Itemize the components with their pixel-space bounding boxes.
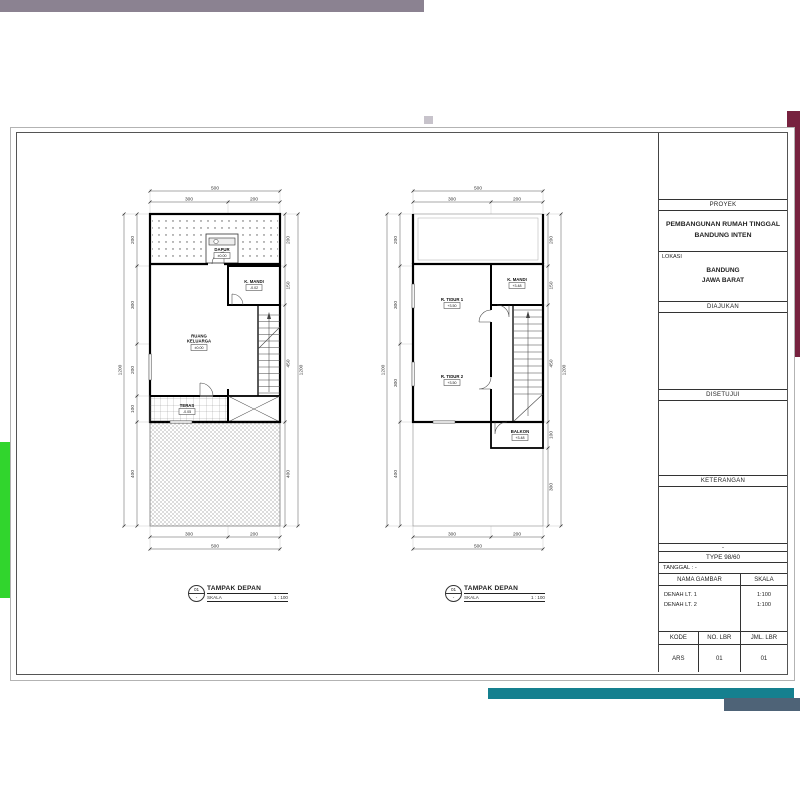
plan2-body	[412, 214, 543, 526]
dim-label: 150	[286, 281, 292, 289]
keterangan-area	[659, 487, 787, 543]
plan1-body	[149, 214, 280, 526]
window-symbol	[433, 421, 455, 423]
page: 500 300 200 1200 200 300 200 100 400 200…	[0, 0, 800, 800]
room-label: R. TIDUR 1	[441, 297, 464, 302]
dim-label: 1200	[562, 364, 568, 375]
dim-label: 300	[185, 197, 193, 203]
drawing-title: TAMPAK DEPAN	[464, 585, 545, 594]
dim-label: 200	[250, 532, 258, 538]
no-lbr-header: NO. LBR	[699, 632, 741, 644]
jml-lbr-header: JML. LBR	[741, 632, 787, 644]
window-symbol	[412, 362, 414, 386]
dim-label: 1200	[381, 364, 387, 375]
dim-label: 1200	[118, 364, 124, 375]
dim-label: 500	[211, 186, 219, 192]
scale-label: SKALA	[464, 595, 479, 600]
drawing-list-header: NAMA GAMBAR SKALA	[659, 574, 787, 586]
tanggal-row: TANGGAL : -	[659, 563, 787, 574]
room-label: R. TIDUR 2	[441, 374, 464, 379]
dim-label: 150	[549, 281, 555, 289]
floor-plan-1-drawing: 500 300 200 1200 200 300 200 100 400 200…	[115, 184, 310, 562]
dim-label: 300	[185, 532, 193, 538]
drawing-scale: 1:100	[741, 600, 787, 610]
drawing-name: DENAH LT. 2	[664, 600, 740, 610]
room-elevation: -0.05	[183, 410, 191, 414]
drawing-number-bubble: 01 -	[188, 585, 205, 602]
house-type: TYPE 98/60	[659, 552, 787, 563]
dim-label: 300	[448, 197, 456, 203]
dim-label: 200	[393, 236, 399, 244]
decor-slate-bar	[724, 698, 800, 711]
room-elevation: +3.48	[515, 436, 524, 440]
dim-label: 200	[549, 236, 555, 244]
dim-label: 200	[250, 197, 258, 203]
dim-label: 200	[286, 236, 292, 244]
room-label: KELUARGA	[187, 339, 211, 344]
plan1-caption: 01 - TAMPAK DEPAN SKALA 1 : 100	[188, 585, 288, 602]
window-symbol	[170, 421, 192, 423]
room-elevation: +3.50	[447, 304, 456, 308]
window-symbol	[149, 354, 151, 380]
room-label: DAPUR	[214, 247, 230, 252]
room-elevation: ±0.00	[218, 254, 227, 258]
drawing-number-bubble: 01 -	[445, 585, 462, 602]
dim-label: 300	[393, 301, 399, 309]
dim-label: 100	[130, 405, 136, 413]
diajukan-header: DIAJUKAN	[659, 301, 787, 313]
sink-symbol	[214, 239, 218, 243]
location-box: LOKASI BANDUNG JAWA BARAT	[659, 251, 787, 301]
scale-label: SKALA	[207, 595, 222, 600]
dim-label: 500	[474, 544, 482, 550]
bubble-top: 01	[446, 586, 461, 594]
floor-plan-2-drawing: 500 300 200 1200 200 300 300 400 200 150…	[378, 184, 573, 562]
dim-label: 200	[513, 532, 521, 538]
kode-header: KODE	[659, 632, 699, 644]
scale-value: 1 : 100	[531, 595, 545, 600]
disetujui-signature-area	[659, 401, 787, 475]
decor-gray-bar-stub	[424, 116, 433, 124]
location-line2: JAWA BARAT	[659, 276, 787, 286]
dim-label: 200	[130, 366, 136, 374]
jml-lbr-value: 01	[741, 645, 787, 672]
dim-label: 450	[286, 359, 292, 367]
skala-header: SKALA	[741, 574, 787, 585]
lokasi-label: LOKASI	[662, 254, 682, 260]
bubble-top: 01	[189, 586, 204, 594]
spacer-row: -	[659, 543, 787, 552]
dim-label: 500	[211, 544, 219, 550]
location-line1: BANDUNG	[659, 266, 787, 276]
title-block-logo-area	[659, 133, 787, 199]
drawing-list: DENAH LT. 1 DENAH LT. 2 1:100 1:100	[659, 586, 787, 632]
room-elevation: +3.48	[512, 284, 521, 288]
dim-label: 450	[549, 359, 555, 367]
code-value-row: ARS 01 01	[659, 645, 787, 672]
project-name: PEMBANGUNAN RUMAH TINGGAL BANDUNG INTEN	[659, 211, 787, 251]
dim-label: 300	[448, 532, 456, 538]
dim-label: 200	[513, 197, 521, 203]
window-symbol	[412, 284, 414, 308]
dim-label: 300	[393, 379, 399, 387]
room-label: K. MANDI	[244, 279, 264, 284]
room-elevation: -0.02	[250, 286, 258, 290]
dim-label: 400	[130, 470, 136, 478]
room-elevation: ±0.00	[195, 346, 204, 350]
decor-green-bar	[0, 442, 10, 598]
dim-label: 1200	[299, 364, 305, 375]
drawing-scale: 1:100	[741, 590, 787, 600]
keterangan-header: KETERANGAN	[659, 475, 787, 487]
plan2-caption: 01 - TAMPAK DEPAN SKALA 1 : 100	[445, 585, 545, 602]
project-name-line2: BANDUNG INTEN	[659, 231, 787, 242]
carport-yard-hatch	[150, 422, 280, 526]
room-label: BALKON	[511, 429, 529, 434]
bubble-bottom: -	[189, 594, 204, 601]
dim-label: 400	[393, 470, 399, 478]
dim-label: 300	[549, 483, 555, 491]
nama-gambar-header: NAMA GAMBAR	[659, 574, 741, 585]
scale-value: 1 : 100	[274, 595, 288, 600]
room-label: TERAS	[180, 403, 195, 408]
disetujui-header: DISETUJUI	[659, 389, 787, 401]
code-header-row: KODE NO. LBR JML. LBR	[659, 632, 787, 645]
no-lbr-value: 01	[699, 645, 741, 672]
proyek-header: PROYEK	[659, 199, 787, 211]
decor-gray-bar	[0, 0, 424, 12]
room-elevation: +3.50	[447, 381, 456, 385]
dim-label: 300	[130, 301, 136, 309]
diajukan-signature-area	[659, 313, 787, 389]
kitchen-counter	[209, 238, 235, 245]
dim-label: 500	[474, 186, 482, 192]
bubble-bottom: -	[446, 594, 461, 601]
room-label: K. MANDI	[507, 277, 527, 282]
kode-value: ARS	[659, 645, 699, 672]
project-name-line1: PEMBANGUNAN RUMAH TINGGAL	[659, 220, 787, 231]
dim-label: 400	[286, 470, 292, 478]
title-block: PROYEK PEMBANGUNAN RUMAH TINGGAL BANDUNG…	[658, 133, 787, 672]
drawing-title: TAMPAK DEPAN	[207, 585, 288, 594]
drawing-name: DENAH LT. 1	[664, 590, 740, 600]
dim-label: 100	[549, 431, 555, 439]
dim-label: 200	[130, 236, 136, 244]
